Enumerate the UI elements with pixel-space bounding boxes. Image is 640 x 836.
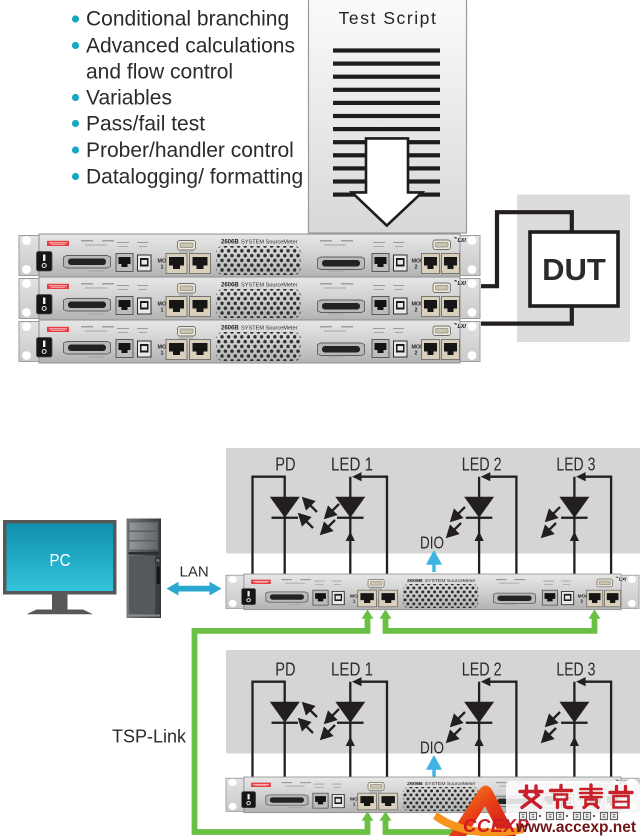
svg-text:Conditional branching: Conditional branching [86,8,289,31]
svg-text:Datalogging/ formatting: Datalogging/ formatting [86,166,303,189]
svg-text:Variables: Variables [86,87,172,110]
svg-text:Pass/fail test: Pass/fail test [86,113,205,136]
svg-text:Prober/handler control: Prober/handler control [86,139,294,162]
svg-text:TSP-Link: TSP-Link [112,727,187,747]
svg-text:Advanced calculations: Advanced calculations [86,35,295,58]
svg-text:PC: PC [50,550,71,570]
svg-text:Test Script: Test Script [339,8,438,28]
svg-text:and flow control: and flow control [86,61,233,84]
svg-text:DUT: DUT [542,252,606,287]
svg-text:LAN: LAN [180,564,209,581]
svg-text:www.accexp.net: www.accexp.net [515,819,636,836]
